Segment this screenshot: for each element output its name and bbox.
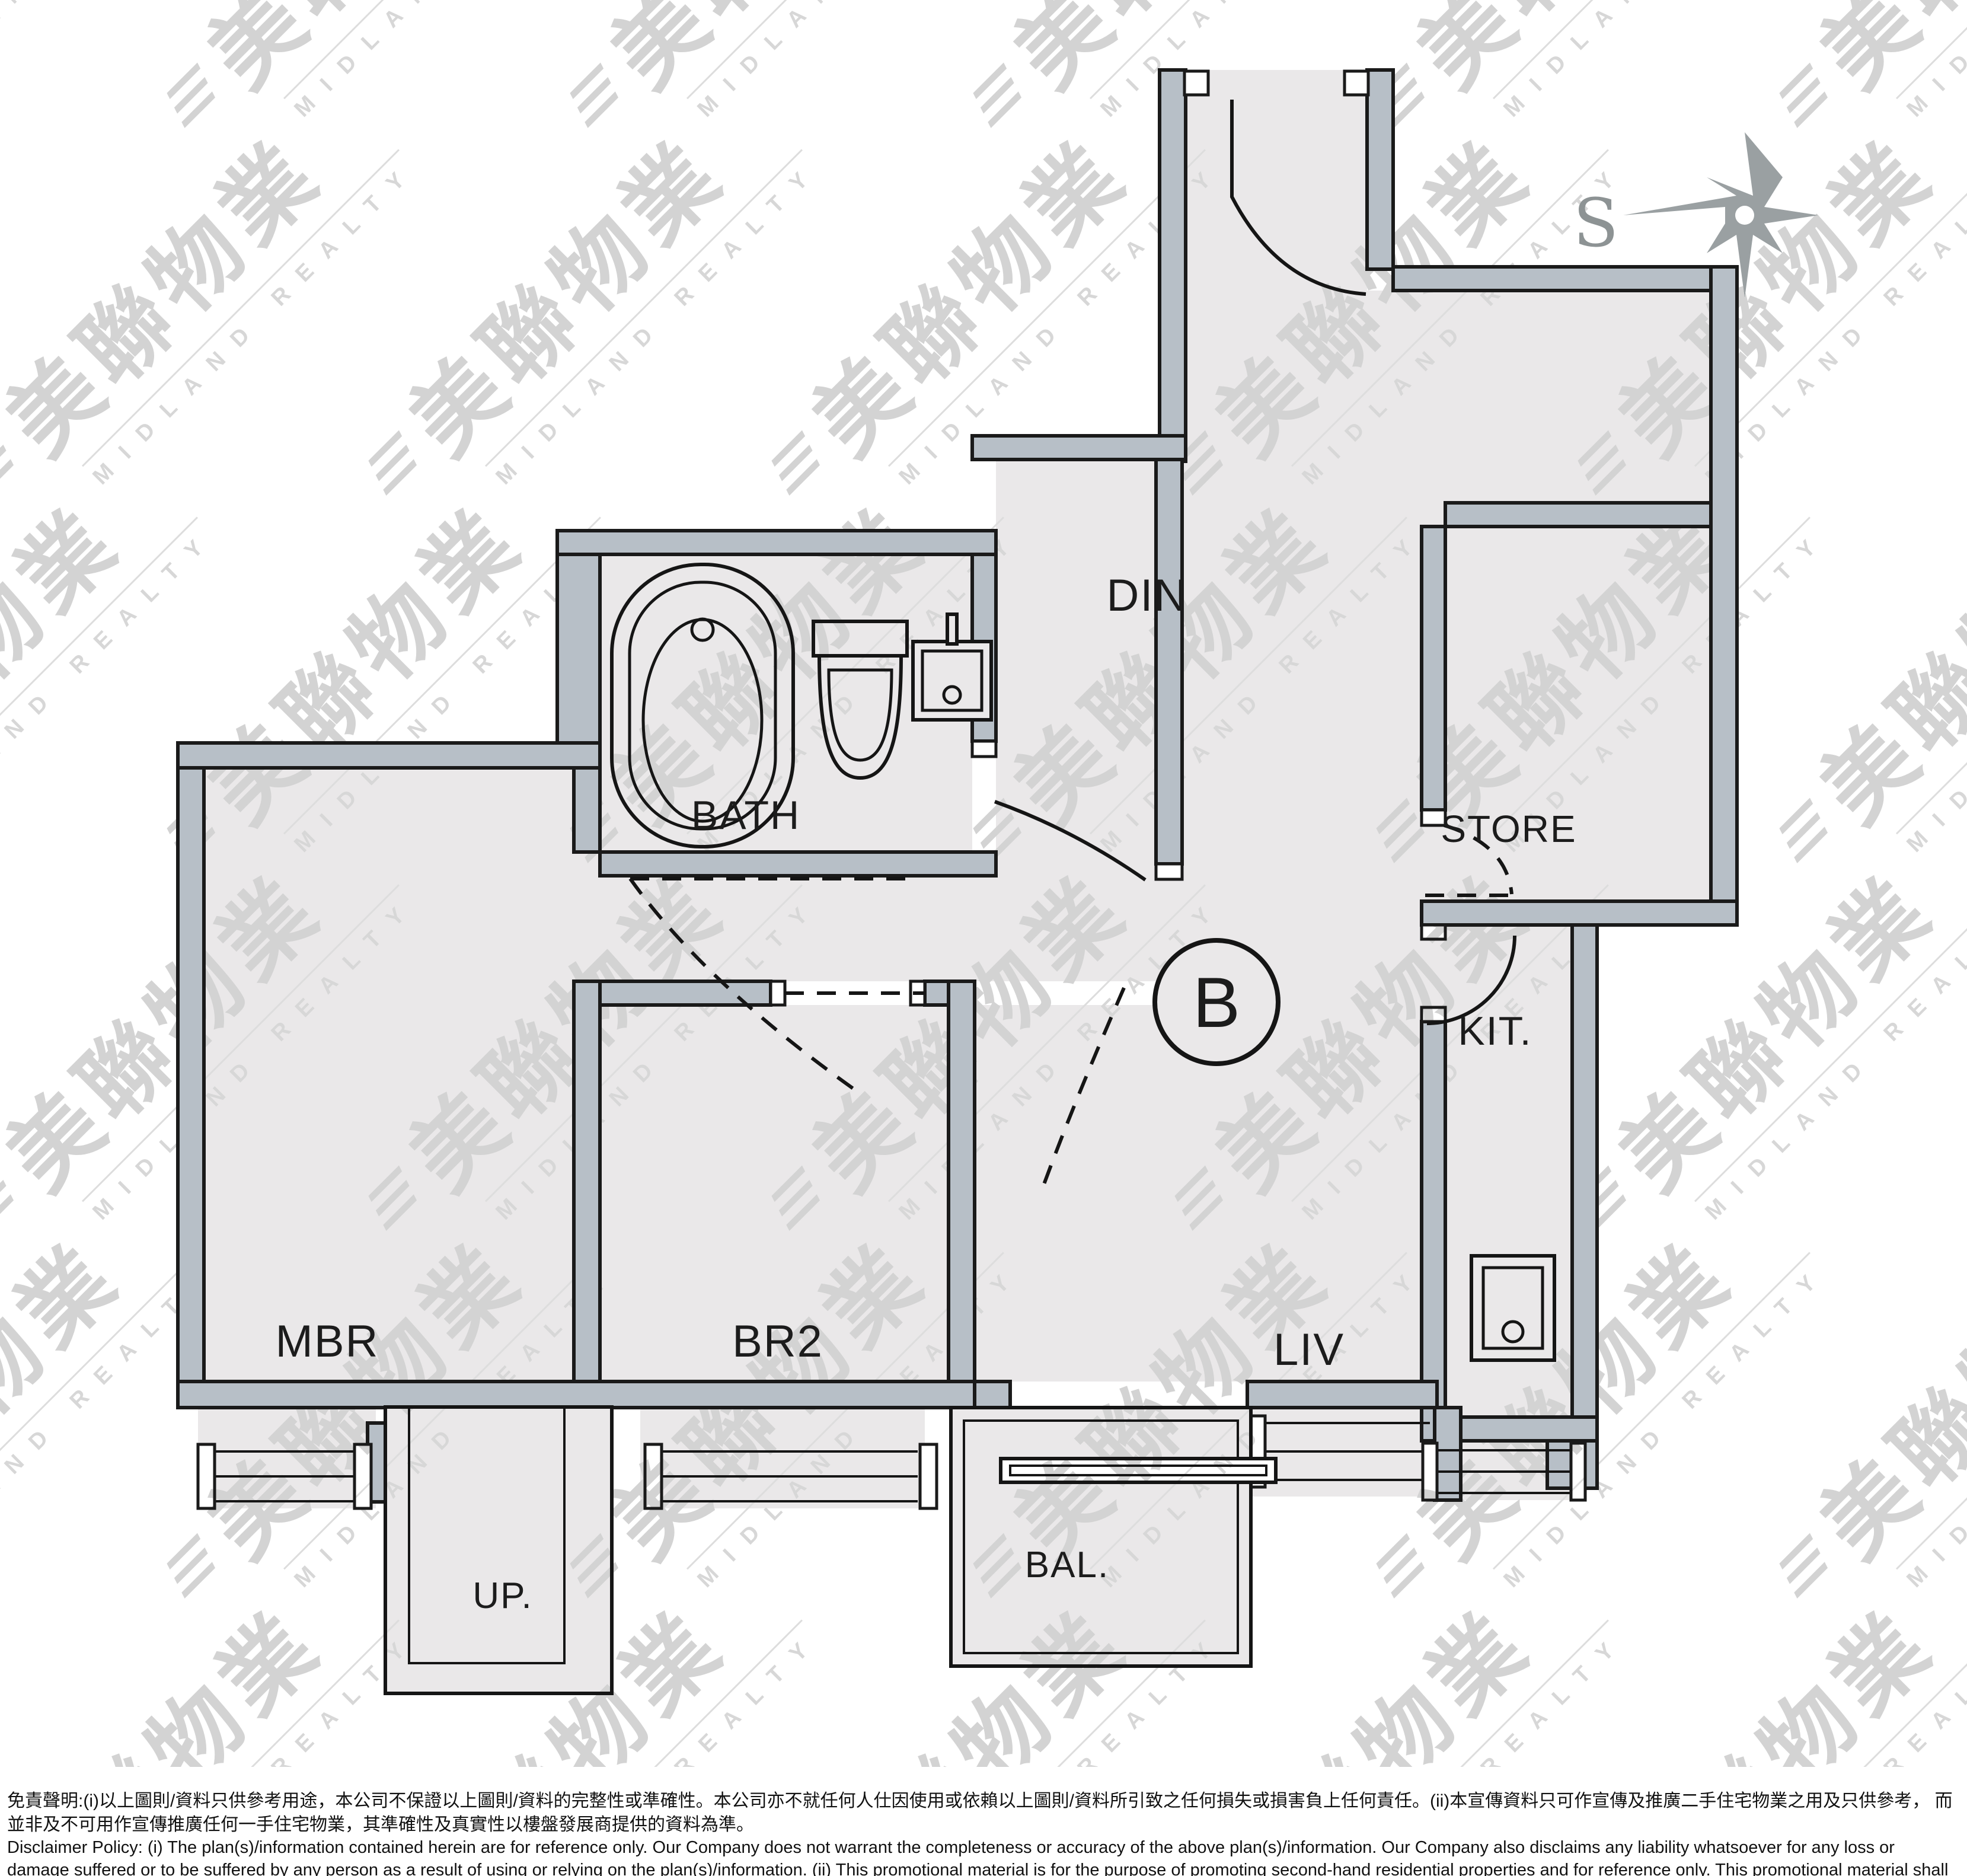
floorplan-page: B S DIN STORE KIT. BATH MBR BR2 LIV BAL.… (0, 0, 1967, 1876)
room-label-liv: LIV (1273, 1325, 1345, 1375)
wall-right-exterior (1711, 267, 1737, 925)
wall-bal-right-block (1435, 1408, 1461, 1500)
wall-hall-liv-partition (1156, 460, 1182, 864)
disclaimer: 免責聲明:(i)以上圖則/資料只供參考用途，本公司不保證以上圖則/資料的完整性或… (7, 1789, 1960, 1876)
wall-liv-bottom-right (1247, 1382, 1437, 1408)
wall-din-store-partition (1422, 527, 1445, 810)
room-mbr-floor (204, 768, 574, 1382)
room-label-din: DIN (1107, 570, 1188, 621)
room-label-store: STORE (1441, 808, 1576, 850)
wall-mbr-left (178, 768, 204, 1407)
jamb-kit-door-bottom (1422, 1007, 1445, 1022)
balcony (951, 1408, 1276, 1666)
jamb-bath-door (972, 741, 996, 757)
wall-kit-bottom (1445, 1417, 1597, 1441)
room-label-up: UP. (472, 1575, 532, 1616)
wall-mbr-right-upper (574, 768, 600, 852)
room-bal-floor (951, 1408, 1251, 1666)
wall-store-top (1445, 503, 1711, 527)
wall-liv-bottom-stub (975, 1382, 1010, 1408)
wall-store-bottom (1422, 901, 1737, 925)
wall-br2-right (949, 981, 975, 1407)
room-label-kit: KIT. (1458, 1009, 1532, 1054)
compass-hub (1735, 206, 1754, 225)
wall-bath-left (557, 554, 600, 743)
jamb-hall-opening (1156, 864, 1182, 879)
wall-bath-bottom (600, 852, 996, 876)
mbr-doorway-floor (574, 852, 600, 981)
hallway-opening-floor (1156, 876, 1182, 1018)
jamb-entry-right (1345, 71, 1368, 95)
room-label-mbr: MBR (276, 1316, 379, 1367)
kitchen-sink-icon (1471, 1256, 1554, 1360)
wall-mbr-right-lower (574, 981, 600, 1407)
jamb-br2-door-left (771, 981, 785, 1005)
wall-bottom-left (178, 1382, 975, 1408)
room-din-liv-floor (1182, 291, 1445, 1382)
wall-top (1393, 267, 1737, 291)
wall-kit-right (1572, 925, 1597, 1426)
disclaimer-zh: 免責聲明:(i)以上圖則/資料只供參考用途，本公司不保證以上圖則/資料的完整性或… (7, 1789, 1960, 1836)
mbr-window-sill-floor (198, 1408, 376, 1508)
wall-liv-kit-partition (1422, 1022, 1445, 1441)
wall-corridor-right (1367, 70, 1393, 269)
wall-bath-top (557, 531, 996, 554)
unit-letter: B (1193, 963, 1240, 1042)
wall-corridor-left (1160, 70, 1186, 461)
hallway-floor (600, 876, 1156, 981)
room-label-bath: BATH (691, 793, 800, 838)
jamb-kit-door-top (1422, 925, 1445, 939)
wall-din-jog-top (972, 436, 1186, 460)
br2-window-sill-floor (640, 1408, 925, 1508)
compass-south-label: S (1573, 185, 1619, 262)
jamb-entry-left (1184, 71, 1208, 95)
wall-mbr-top (178, 743, 600, 768)
balcony-slider-icon (1001, 1459, 1276, 1482)
staircase-up (385, 1407, 612, 1693)
floor-plan: B S DIN STORE KIT. BATH MBR BR2 LIV BAL.… (0, 0, 1967, 1876)
corridor-to-bath-floor (996, 460, 1156, 876)
room-label-br2: BR2 (732, 1316, 823, 1367)
room-liv-left-floor (975, 1005, 1182, 1382)
disclaimer-en: Disclaimer Policy: (i) The plan(s)/infor… (7, 1836, 1960, 1876)
room-label-bal: BAL. (1025, 1545, 1109, 1585)
up-floor (385, 1407, 612, 1693)
